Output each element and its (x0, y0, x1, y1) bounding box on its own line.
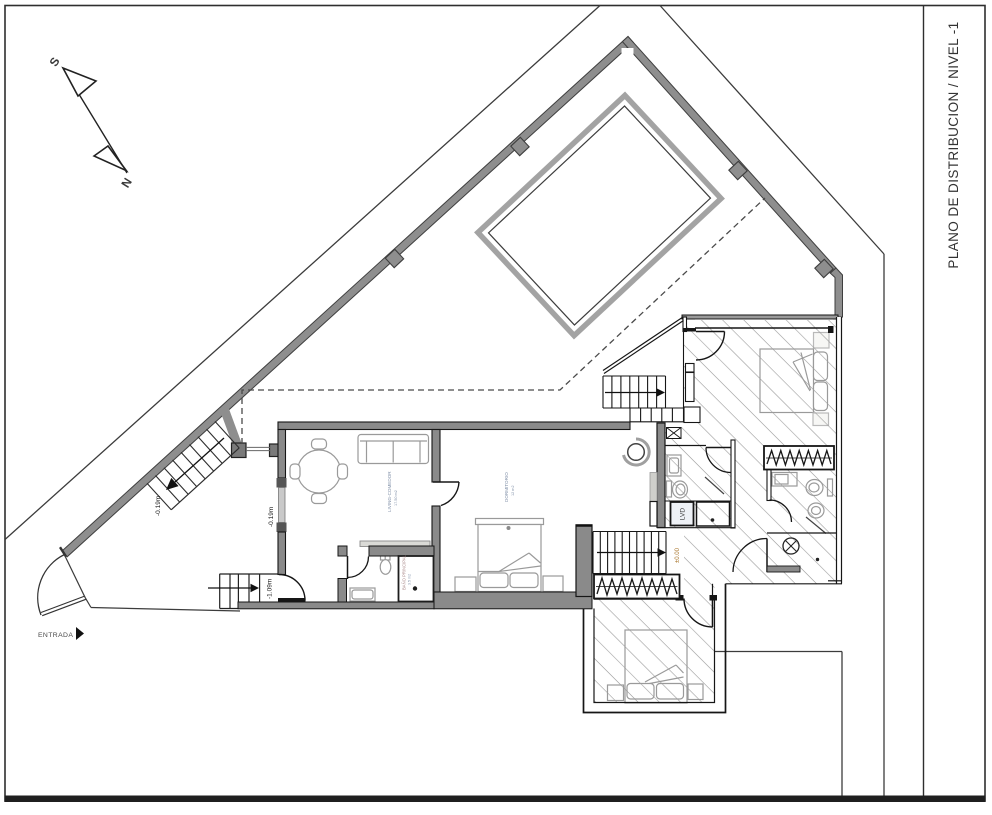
svg-text:PLANO DE DISTRIBUCION / NIVEL: PLANO DE DISTRIBUCION / NIVEL -1 (946, 21, 961, 268)
svg-text:LIVING-COMEDOR: LIVING-COMEDOR (387, 471, 392, 512)
svg-text:±0.00: ±0.00 (675, 547, 681, 563)
svg-text:LVD: LVD (680, 508, 687, 520)
svg-text:12 m2: 12 m2 (511, 485, 515, 496)
svg-text:ENTRADA: ENTRADA (38, 632, 73, 639)
svg-text:3.5 m2: 3.5 m2 (408, 574, 412, 585)
svg-text:-0.19m: -0.19m (268, 507, 275, 527)
svg-text:-1.09m: -1.09m (267, 579, 274, 599)
svg-text:-0.19m: -0.19m (155, 496, 162, 516)
svg-text:17.50 m2: 17.50 m2 (394, 490, 398, 506)
svg-text:DORMITORIO: DORMITORIO (504, 472, 509, 502)
svg-text:BAÑO PRINCIPAL: BAÑO PRINCIPAL (402, 555, 407, 590)
